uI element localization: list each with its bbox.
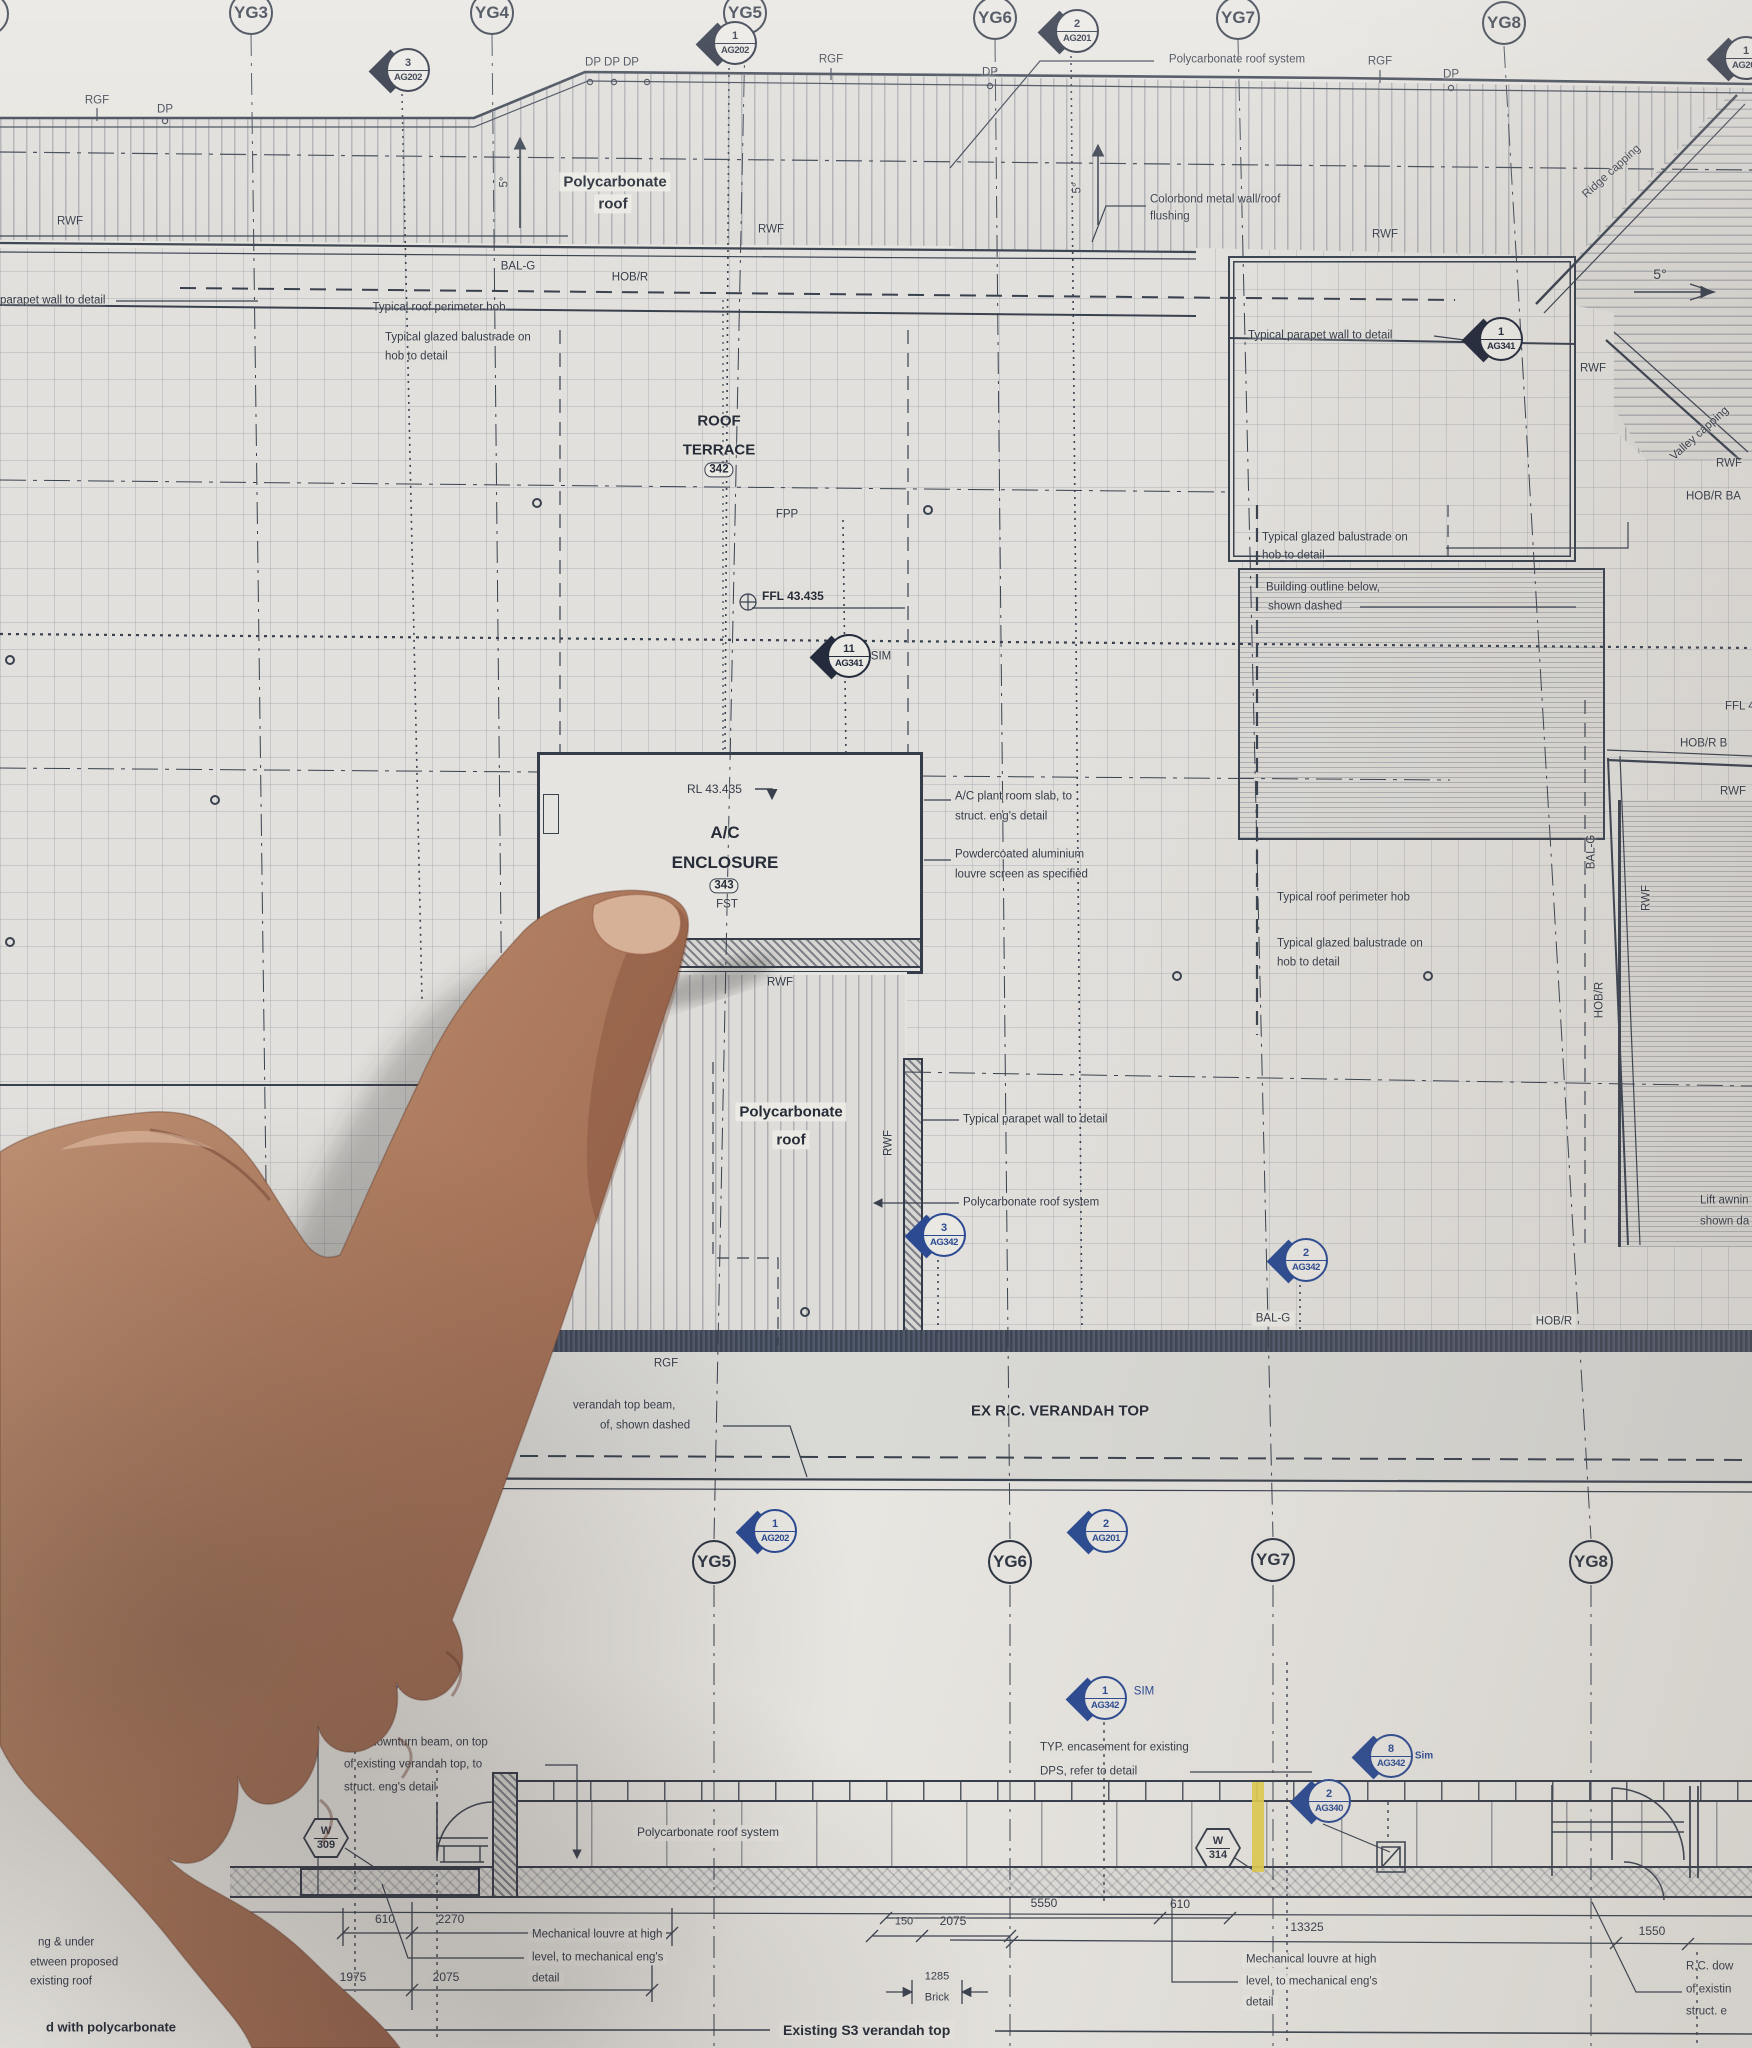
blueprint-photo: RGFDPDP DP DPRGFDPPolycarbonate roof sys…	[0, 0, 1752, 2048]
hand-silhouette	[0, 890, 688, 2048]
pointing-hand	[0, 0, 1752, 2048]
